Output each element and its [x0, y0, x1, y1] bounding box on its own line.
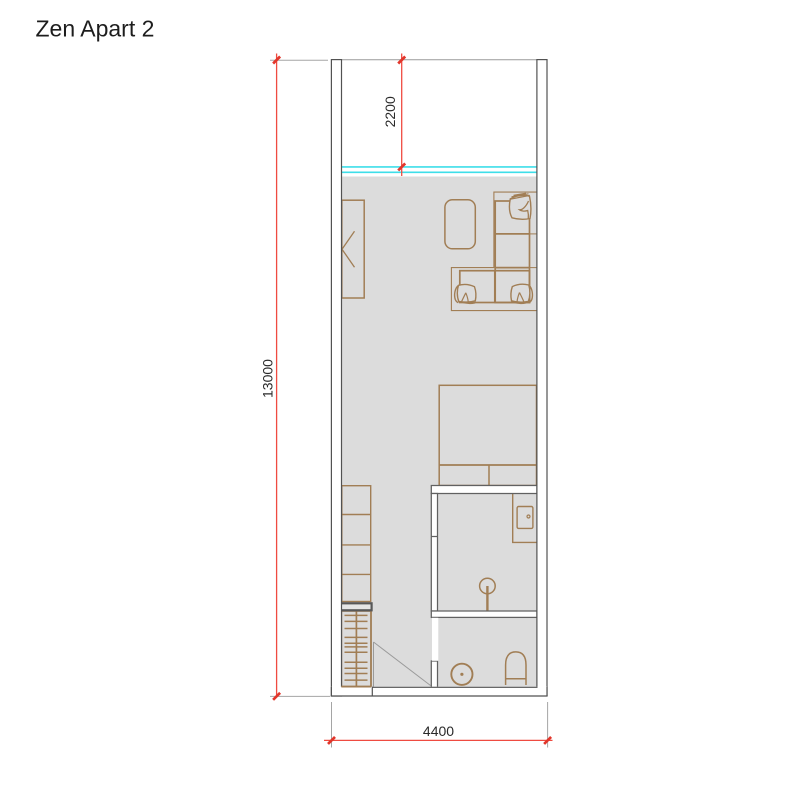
svg-text:13000: 13000	[260, 359, 276, 398]
svg-text:Zen Apart 2: Zen Apart 2	[36, 15, 155, 41]
svg-text:2200: 2200	[382, 96, 398, 127]
svg-text:4400: 4400	[423, 723, 454, 739]
